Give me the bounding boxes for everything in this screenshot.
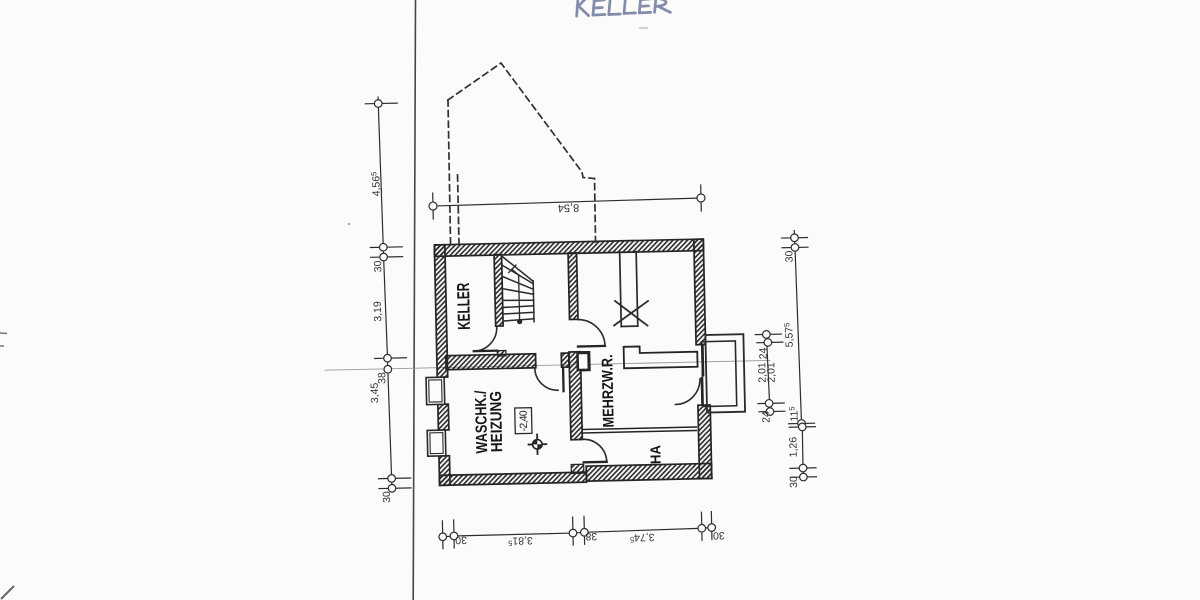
svg-text:3,45: 3,45	[369, 382, 381, 403]
svg-text:2,01: 2,01	[765, 362, 777, 383]
svg-text:30: 30	[381, 491, 393, 503]
svg-text:24: 24	[757, 347, 769, 359]
svg-text:HEIZUNG: HEIZUNG	[488, 391, 506, 452]
svg-text:30: 30	[455, 534, 467, 546]
svg-text:HA: HA	[648, 444, 664, 464]
svg-text:30: 30	[788, 476, 800, 488]
svg-text:38: 38	[585, 530, 597, 542]
svg-text:-2,40: -2,40	[518, 410, 530, 431]
svg-text:38: 38	[376, 372, 388, 384]
svg-text:1,26: 1,26	[787, 437, 799, 458]
svg-text:KELLER: KELLER	[453, 282, 474, 330]
svg-text:MEHRZW.R.: MEHRZW.R.	[599, 354, 618, 427]
svg-text:24: 24	[760, 411, 772, 423]
svg-text:3,19: 3,19	[372, 301, 384, 322]
svg-text:8,54: 8,54	[558, 201, 580, 213]
svg-text:30: 30	[713, 529, 725, 541]
svg-text:30: 30	[372, 260, 384, 272]
svg-text:30: 30	[783, 250, 795, 262]
